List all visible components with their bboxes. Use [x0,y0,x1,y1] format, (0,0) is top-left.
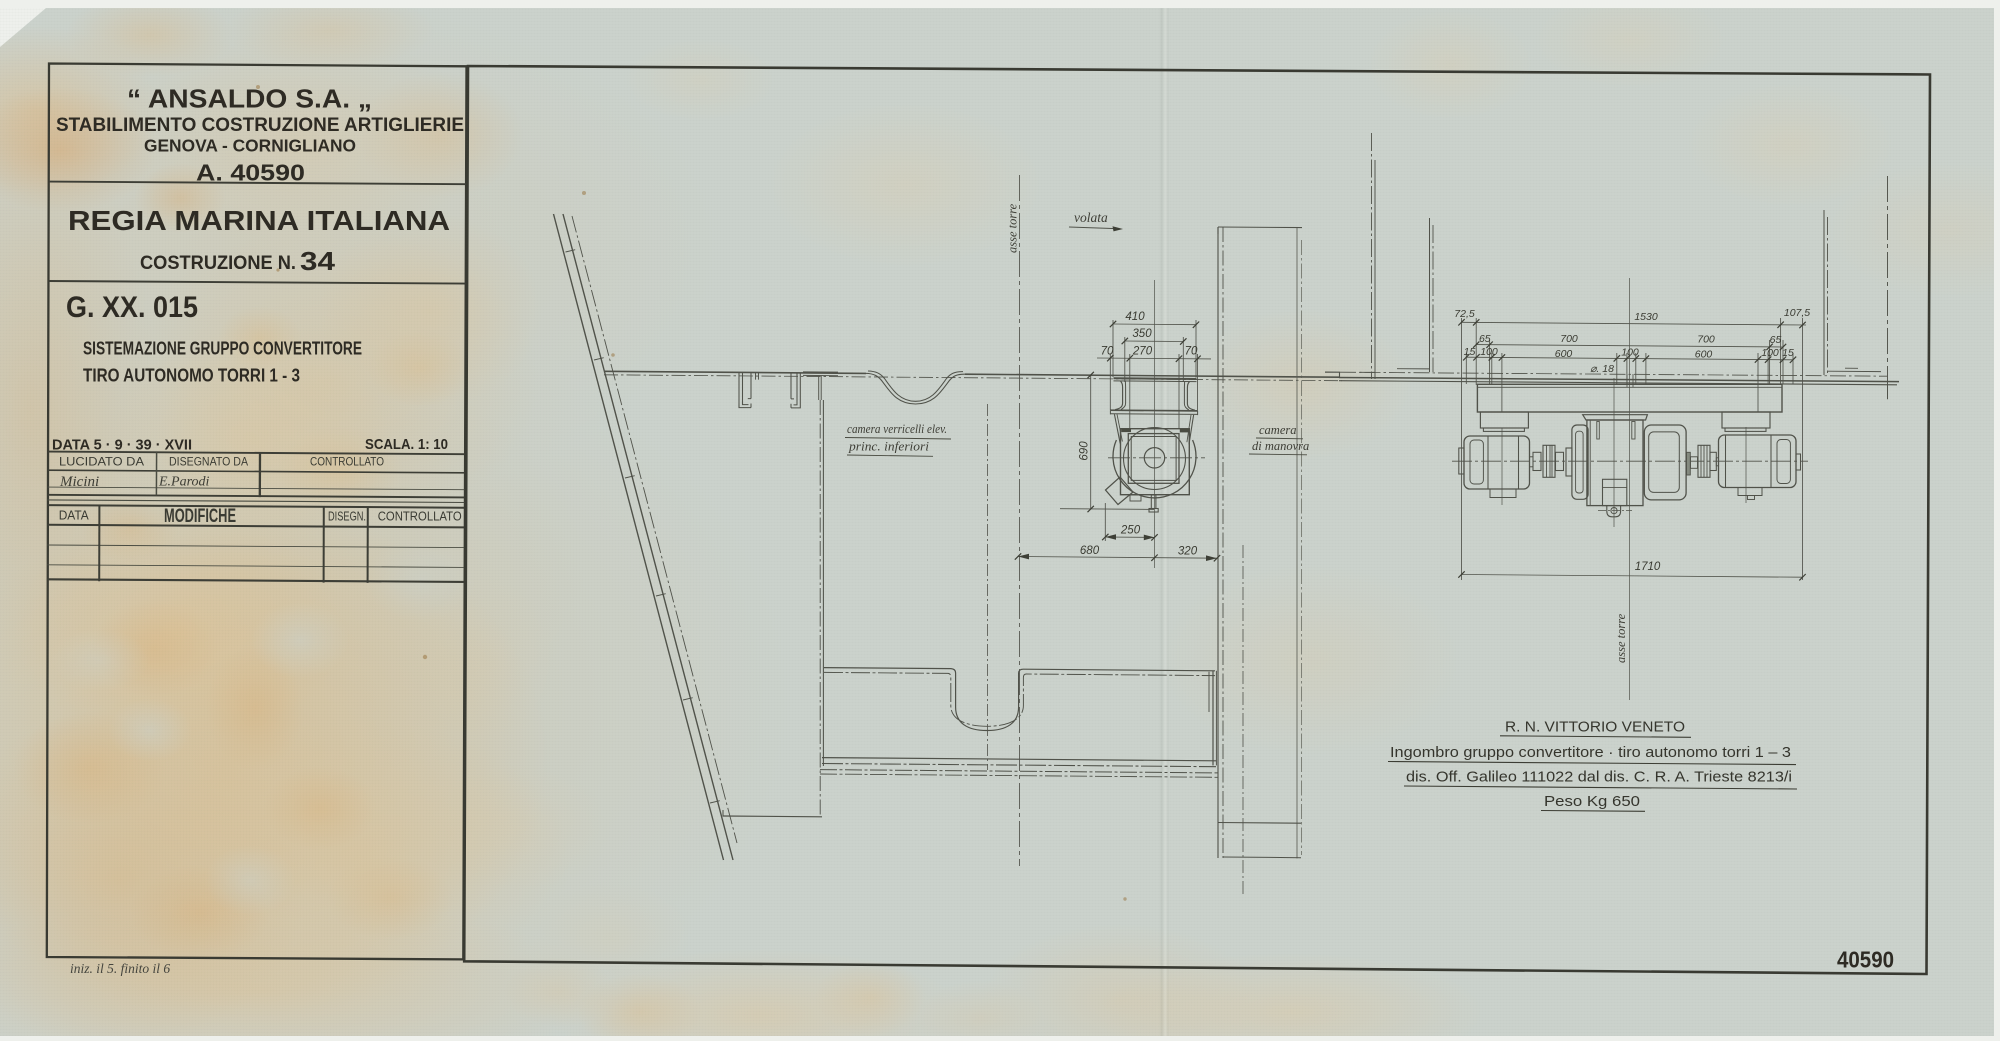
svg-text:680: 680 [1080,545,1100,557]
svg-text:TIRO AUTONOMO TORRI 1 - 3: TIRO AUTONOMO TORRI 1 - 3 [83,366,300,386]
svg-text:R. N. VITTORIO VENETO: R. N. VITTORIO VENETO [1505,719,1685,736]
svg-text:di manovra: di manovra [1252,439,1309,453]
svg-text:Ingombro gruppo convertitore: Ingombro gruppo convertitore · tiro auto… [1390,744,1791,761]
svg-text:camera verricelli elev.: camera verricelli elev. [847,421,947,436]
svg-text:asse torre: asse torre [1614,613,1628,663]
svg-text:COSTRUZIONE N.: COSTRUZIONE N. [140,253,296,274]
svg-text:65: 65 [1479,333,1491,345]
svg-text:GENOVA - CORNIGLIANO: GENOVA - CORNIGLIANO [144,136,356,156]
svg-text:600: 600 [1695,349,1713,361]
svg-text:iniz. il 5. finito il 6: iniz. il 5. finito il 6 [70,961,170,976]
svg-text:34: 34 [300,246,336,276]
svg-text:Peso Kg 650: Peso Kg 650 [1544,793,1640,810]
svg-text:350: 350 [1132,328,1152,340]
svg-text:CONTROLLATO: CONTROLLATO [378,510,462,524]
svg-text:asse torre: asse torre [1006,203,1020,253]
svg-text:100: 100 [1480,346,1498,358]
svg-text:100: 100 [1761,347,1779,359]
svg-text:320: 320 [1178,546,1198,558]
svg-text:DATA: DATA [59,508,89,523]
svg-text:CONTROLLATO: CONTROLLATO [310,457,384,469]
svg-text:SISTEMAZIONE GRUPPO CONVERTI: SISTEMAZIONE GRUPPO CONVERTITORE [83,339,362,359]
svg-text:DISEGN.: DISEGN. [328,510,366,524]
svg-text:700: 700 [1560,333,1578,345]
svg-text:107,5: 107,5 [1784,307,1810,319]
svg-text:270: 270 [1132,346,1153,358]
svg-text:⌀. 18: ⌀. 18 [1590,363,1614,375]
svg-text:70: 70 [1101,346,1114,358]
svg-text:SCALA. 1: 10: SCALA. 1: 10 [365,436,448,453]
svg-text:camera: camera [1259,423,1297,437]
svg-text:15: 15 [1464,346,1476,358]
svg-text:“ ANSALDO S.A. „: “ ANSALDO S.A. „ [127,84,372,114]
svg-text:100: 100 [1621,347,1639,359]
svg-text:70: 70 [1185,346,1198,358]
svg-text:15: 15 [1782,347,1794,359]
svg-text:dis. Off. Galileo 111022 da: dis. Off. Galileo 111022 dal dis. C. R. … [1406,769,1792,786]
svg-text:volata: volata [1074,210,1108,225]
svg-text:STABILIMENTO COSTRUZIONE ARTIG: STABILIMENTO COSTRUZIONE ARTIGLIERIE [56,115,464,136]
svg-text:Micini: Micini [59,474,99,490]
svg-text:410: 410 [1125,311,1145,323]
svg-text:72,5: 72,5 [1454,308,1475,320]
svg-text:DATA 5 · 9 · 39 · XVII: DATA 5 · 9 · 39 · XVII [52,437,192,454]
svg-text:LUCIDATO DA: LUCIDATO DA [59,457,144,469]
svg-text:1530: 1530 [1634,311,1658,323]
svg-text:250: 250 [1120,525,1141,537]
svg-text:princ. inferiori: princ. inferiori [848,439,929,454]
svg-text:DISEGNATO DA: DISEGNATO DA [169,457,248,469]
svg-text:65: 65 [1770,334,1782,346]
svg-text:700: 700 [1697,334,1715,346]
svg-text:G. XX. 015: G. XX. 015 [66,291,198,324]
svg-text:REGIA MARINA ITALIANA: REGIA MARINA ITALIANA [68,205,450,236]
svg-text:MODIFICHE: MODIFICHE [164,506,236,527]
svg-text:1710: 1710 [1635,561,1661,573]
svg-text:A. 40590: A. 40590 [196,160,305,186]
svg-text:E.Parodi: E.Parodi [158,475,210,490]
svg-text:600: 600 [1555,348,1573,360]
svg-text:690: 690 [1079,441,1091,461]
svg-text:40590: 40590 [1837,947,1894,973]
